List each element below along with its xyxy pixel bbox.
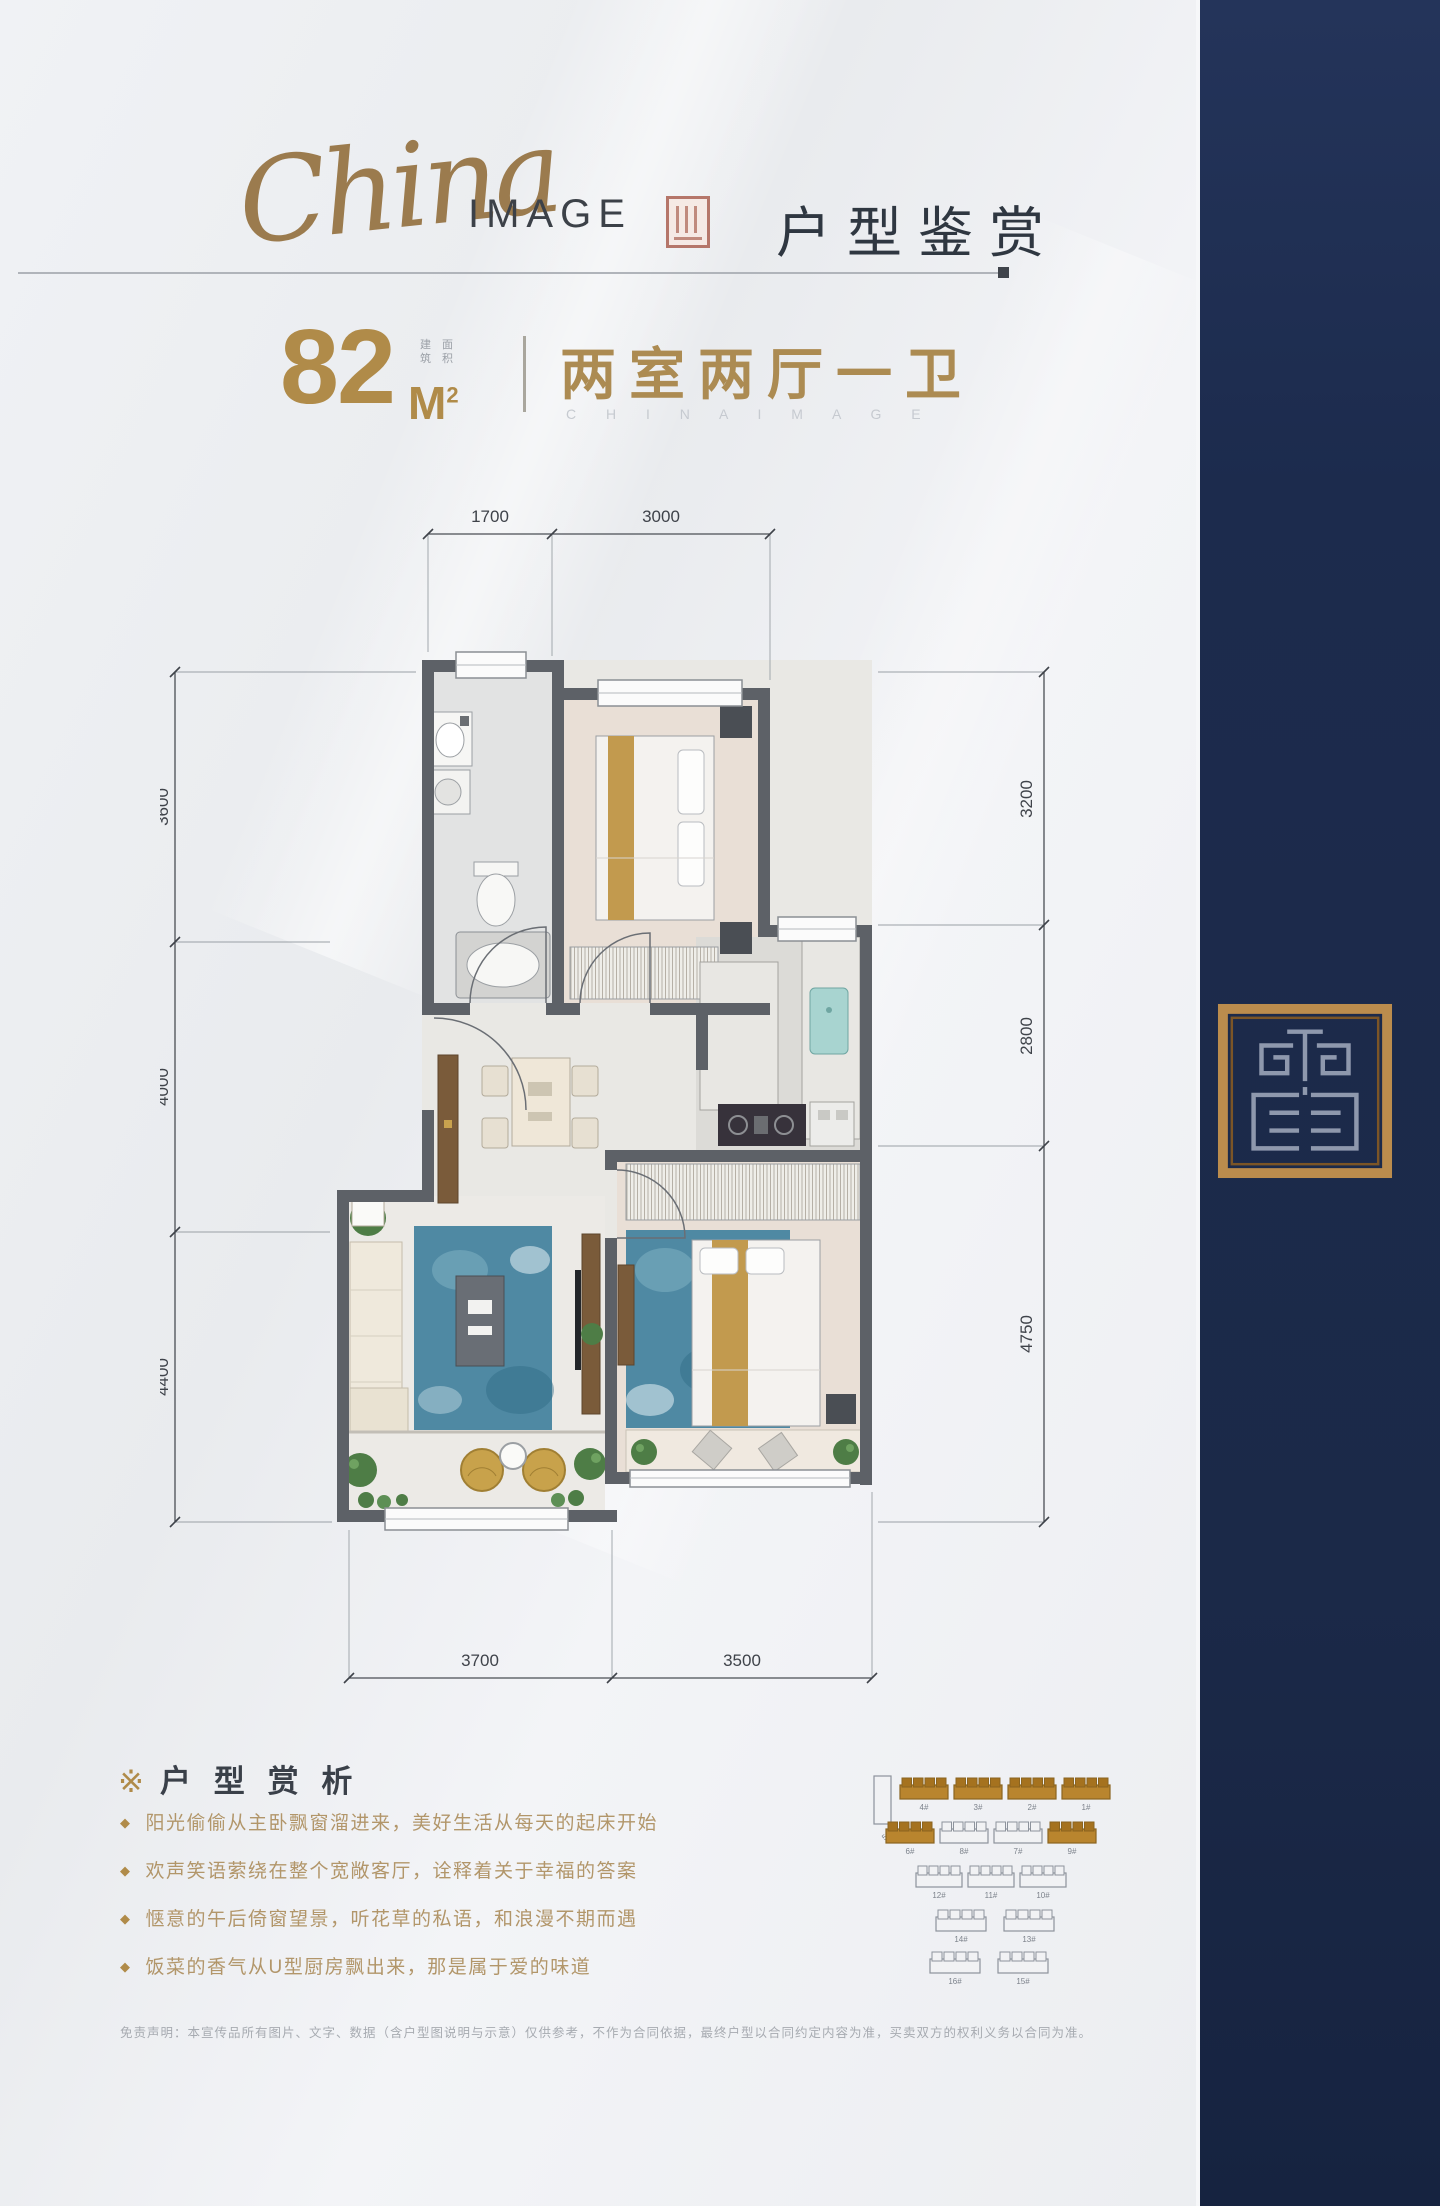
dim-top-1: 1700 [471, 507, 509, 526]
siteplan-building-label: 3# [974, 1803, 983, 1812]
siteplan-building-label: 10# [1036, 1891, 1050, 1900]
siteplan-building: 15# [998, 1952, 1048, 1986]
brand-script-logo: China [233, 110, 603, 263]
dim-left-1: 3600 [160, 788, 172, 826]
analysis-bullet: ◆阳光偷偷从主卧飘窗溜进来，美好生活从每天的起床开始 [120, 1808, 658, 1835]
gold-brand-seal [1216, 1002, 1394, 1180]
dim-left-3: 4400 [160, 1358, 172, 1396]
dim-bottom-1: 3700 [461, 1651, 499, 1670]
disclaimer-text: 免责声明：本宣传品所有图片、文字、数据（含户型图说明与示意）仅供参考，不作为合同… [120, 2022, 1130, 2041]
layout-latin-subtitle: C H I N A I M A G E [566, 406, 934, 422]
siteplan-building: 12# [916, 1866, 962, 1900]
area-note: 建 面 筑 积 [420, 338, 457, 366]
siteplan-building-label: 4# [920, 1803, 929, 1812]
area-value: 82 [280, 314, 394, 420]
analysis-bullet: ◆欢声笑语萦绕在整个宽敞客厅，诠释着关于幸福的答案 [120, 1856, 638, 1883]
siteplan-building-label: 15# [1016, 1977, 1030, 1986]
diamond-bullet-icon: ◆ [120, 1911, 132, 1926]
siteplan-building: 4# [900, 1778, 948, 1812]
page-title: 户型鉴赏 [776, 188, 1060, 268]
siteplan-building: 8# [940, 1822, 988, 1856]
analysis-bullet: ◆饭菜的香气从U型厨房飘出来，那是属于爱的味道 [120, 1952, 591, 1979]
siteplan-building: 7# [994, 1822, 1042, 1856]
siteplan-svg: 5#4#3#2#1#6#8#7#9#12#11#10#14#13#16#15# [872, 1772, 1112, 1992]
dim-left-2: 4000 [160, 1068, 172, 1106]
siteplan-building-label: 11# [985, 1891, 998, 1900]
siteplan-building: 6# [886, 1822, 934, 1856]
siteplan-building-label: 14# [954, 1935, 968, 1944]
brand-word: IMAGE [468, 192, 632, 237]
red-seal-icon [666, 196, 710, 248]
siteplan-building: 13# [1004, 1910, 1054, 1944]
area-unit: M2 [408, 376, 459, 430]
siteplan-building-label: 8# [960, 1847, 969, 1856]
siteplan-building-label: 13# [1022, 1935, 1036, 1944]
dim-right-2: 2800 [1017, 1017, 1036, 1055]
header-divider [18, 272, 1000, 274]
siteplan-building: 16# [930, 1952, 980, 1986]
siteplan-building-label: 7# [1014, 1847, 1023, 1856]
layout-title: 两室两厅一卫 [560, 330, 974, 411]
siteplan-building-label: 6# [906, 1847, 915, 1856]
dim-right-3: 4750 [1017, 1315, 1036, 1353]
siteplan-building-label: 2# [1028, 1803, 1037, 1812]
diamond-bullet-icon: ◆ [120, 1863, 132, 1878]
diamond-bullet-icon: ◆ [120, 1815, 132, 1830]
siteplan-building-label: 1# [1082, 1803, 1091, 1812]
unit-divider [523, 336, 526, 412]
diamond-bullet-icon: ◆ [120, 1959, 132, 1974]
dim-bottom-2: 3500 [723, 1651, 761, 1670]
siteplan: 5#4#3#2#1#6#8#7#9#12#11#10#14#13#16#15# [872, 1772, 1112, 1992]
siteplan-building-label: 16# [948, 1977, 962, 1986]
floorplan: 1700 3000 3600 4000 4400 3200 2800 4750 … [160, 470, 1100, 1730]
analysis-title: ※户 型 赏 析 [118, 1756, 778, 1801]
siteplan-building: 1# [1062, 1778, 1110, 1812]
floorplan-svg: 1700 3000 3600 4000 4400 3200 2800 4750 … [160, 470, 1100, 1730]
siteplan-building-label: 9# [1068, 1847, 1077, 1856]
analysis-bullet: ◆惬意的午后倚窗望景，听花草的私语，和浪漫不期而遇 [120, 1904, 638, 1931]
analysis-bullet-text: 阳光偷偷从主卧飘窗溜进来，美好生活从每天的起床开始 [146, 1813, 659, 1834]
analysis-bullet-text: 饭菜的香气从U型厨房飘出来，那是属于爱的味道 [146, 1957, 592, 1978]
siteplan-building: 2# [1008, 1778, 1056, 1812]
dim-top-2: 3000 [642, 507, 680, 526]
seal-foot [674, 237, 702, 240]
siteplan-building [874, 1776, 891, 1824]
area-note-line2: 筑 积 [420, 352, 457, 366]
area-unit-letter: M [408, 377, 446, 429]
area-note-line1: 建 面 [420, 338, 457, 352]
analysis-title-marker: ※ [118, 1764, 150, 1800]
analysis-bullet-text: 欢声笑语萦绕在整个宽敞客厅，诠释着关于幸福的答案 [146, 1861, 638, 1882]
seal-bars [676, 206, 700, 233]
gold-seal-icon [1216, 1002, 1394, 1180]
dim-right-1: 3200 [1017, 780, 1036, 818]
area-unit-sup: 2 [446, 383, 458, 408]
analysis-section: ※户 型 赏 析 ◆阳光偷偷从主卧飘窗溜进来，美好生活从每天的起床开始 ◆欢声笑… [118, 1756, 778, 1801]
analysis-title-text: 户 型 赏 析 [160, 1764, 358, 1800]
siteplan-building: 3# [954, 1778, 1002, 1812]
header-divider-cap [998, 267, 1009, 278]
siteplan-building: 9# [1048, 1822, 1096, 1856]
analysis-bullet-text: 惬意的午后倚窗望景，听花草的私语，和浪漫不期而遇 [146, 1909, 638, 1930]
siteplan-building: 11# [968, 1866, 1014, 1900]
siteplan-building: 10# [1020, 1866, 1066, 1900]
siteplan-building: 14# [936, 1910, 986, 1944]
siteplan-building-label: 12# [932, 1891, 946, 1900]
